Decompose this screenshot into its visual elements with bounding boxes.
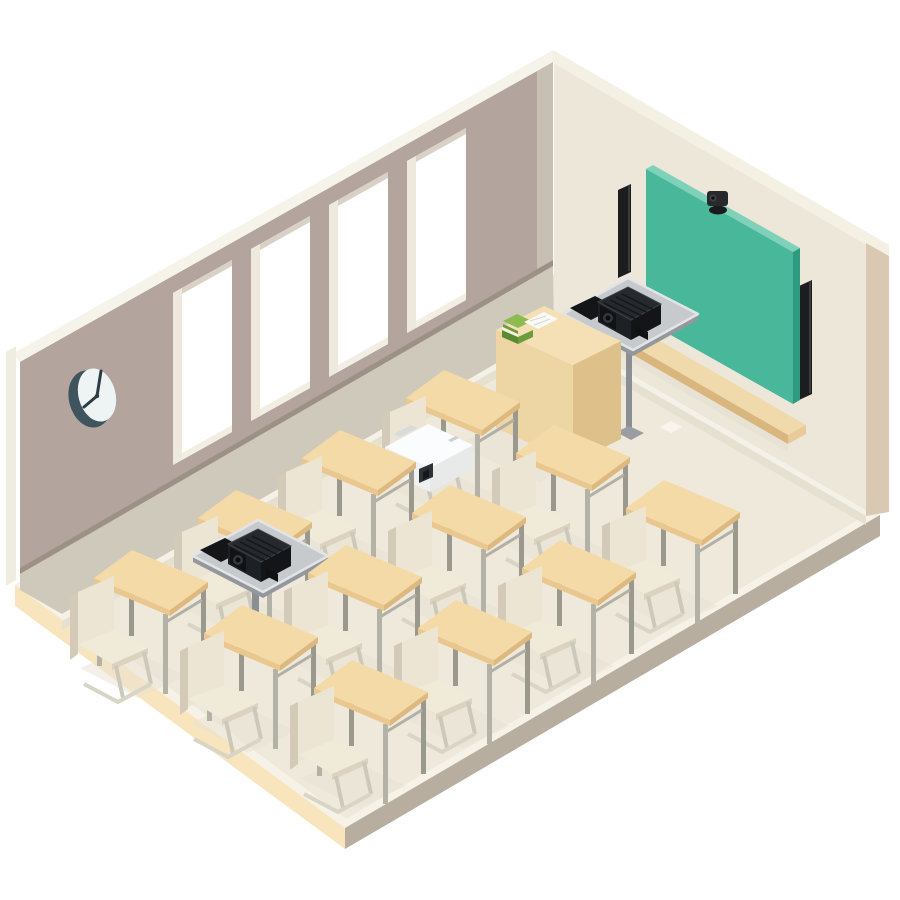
ptz-camera [707, 191, 728, 215]
window-2 [251, 216, 310, 421]
window-3 [329, 172, 388, 377]
wall-stand-pole [626, 345, 632, 437]
corner-strip [537, 62, 553, 280]
classroom-scene [0, 0, 900, 900]
clock-hub [95, 394, 99, 398]
right-wall-edge-strip [866, 243, 889, 516]
window-1 [173, 260, 232, 465]
window-4 [407, 128, 466, 333]
camera-lens-core [711, 196, 714, 199]
classroom-illustration [0, 0, 900, 900]
left-wall-cut-face [6, 346, 16, 586]
board-right-edge [793, 248, 800, 404]
student-desks-front [70, 540, 636, 812]
